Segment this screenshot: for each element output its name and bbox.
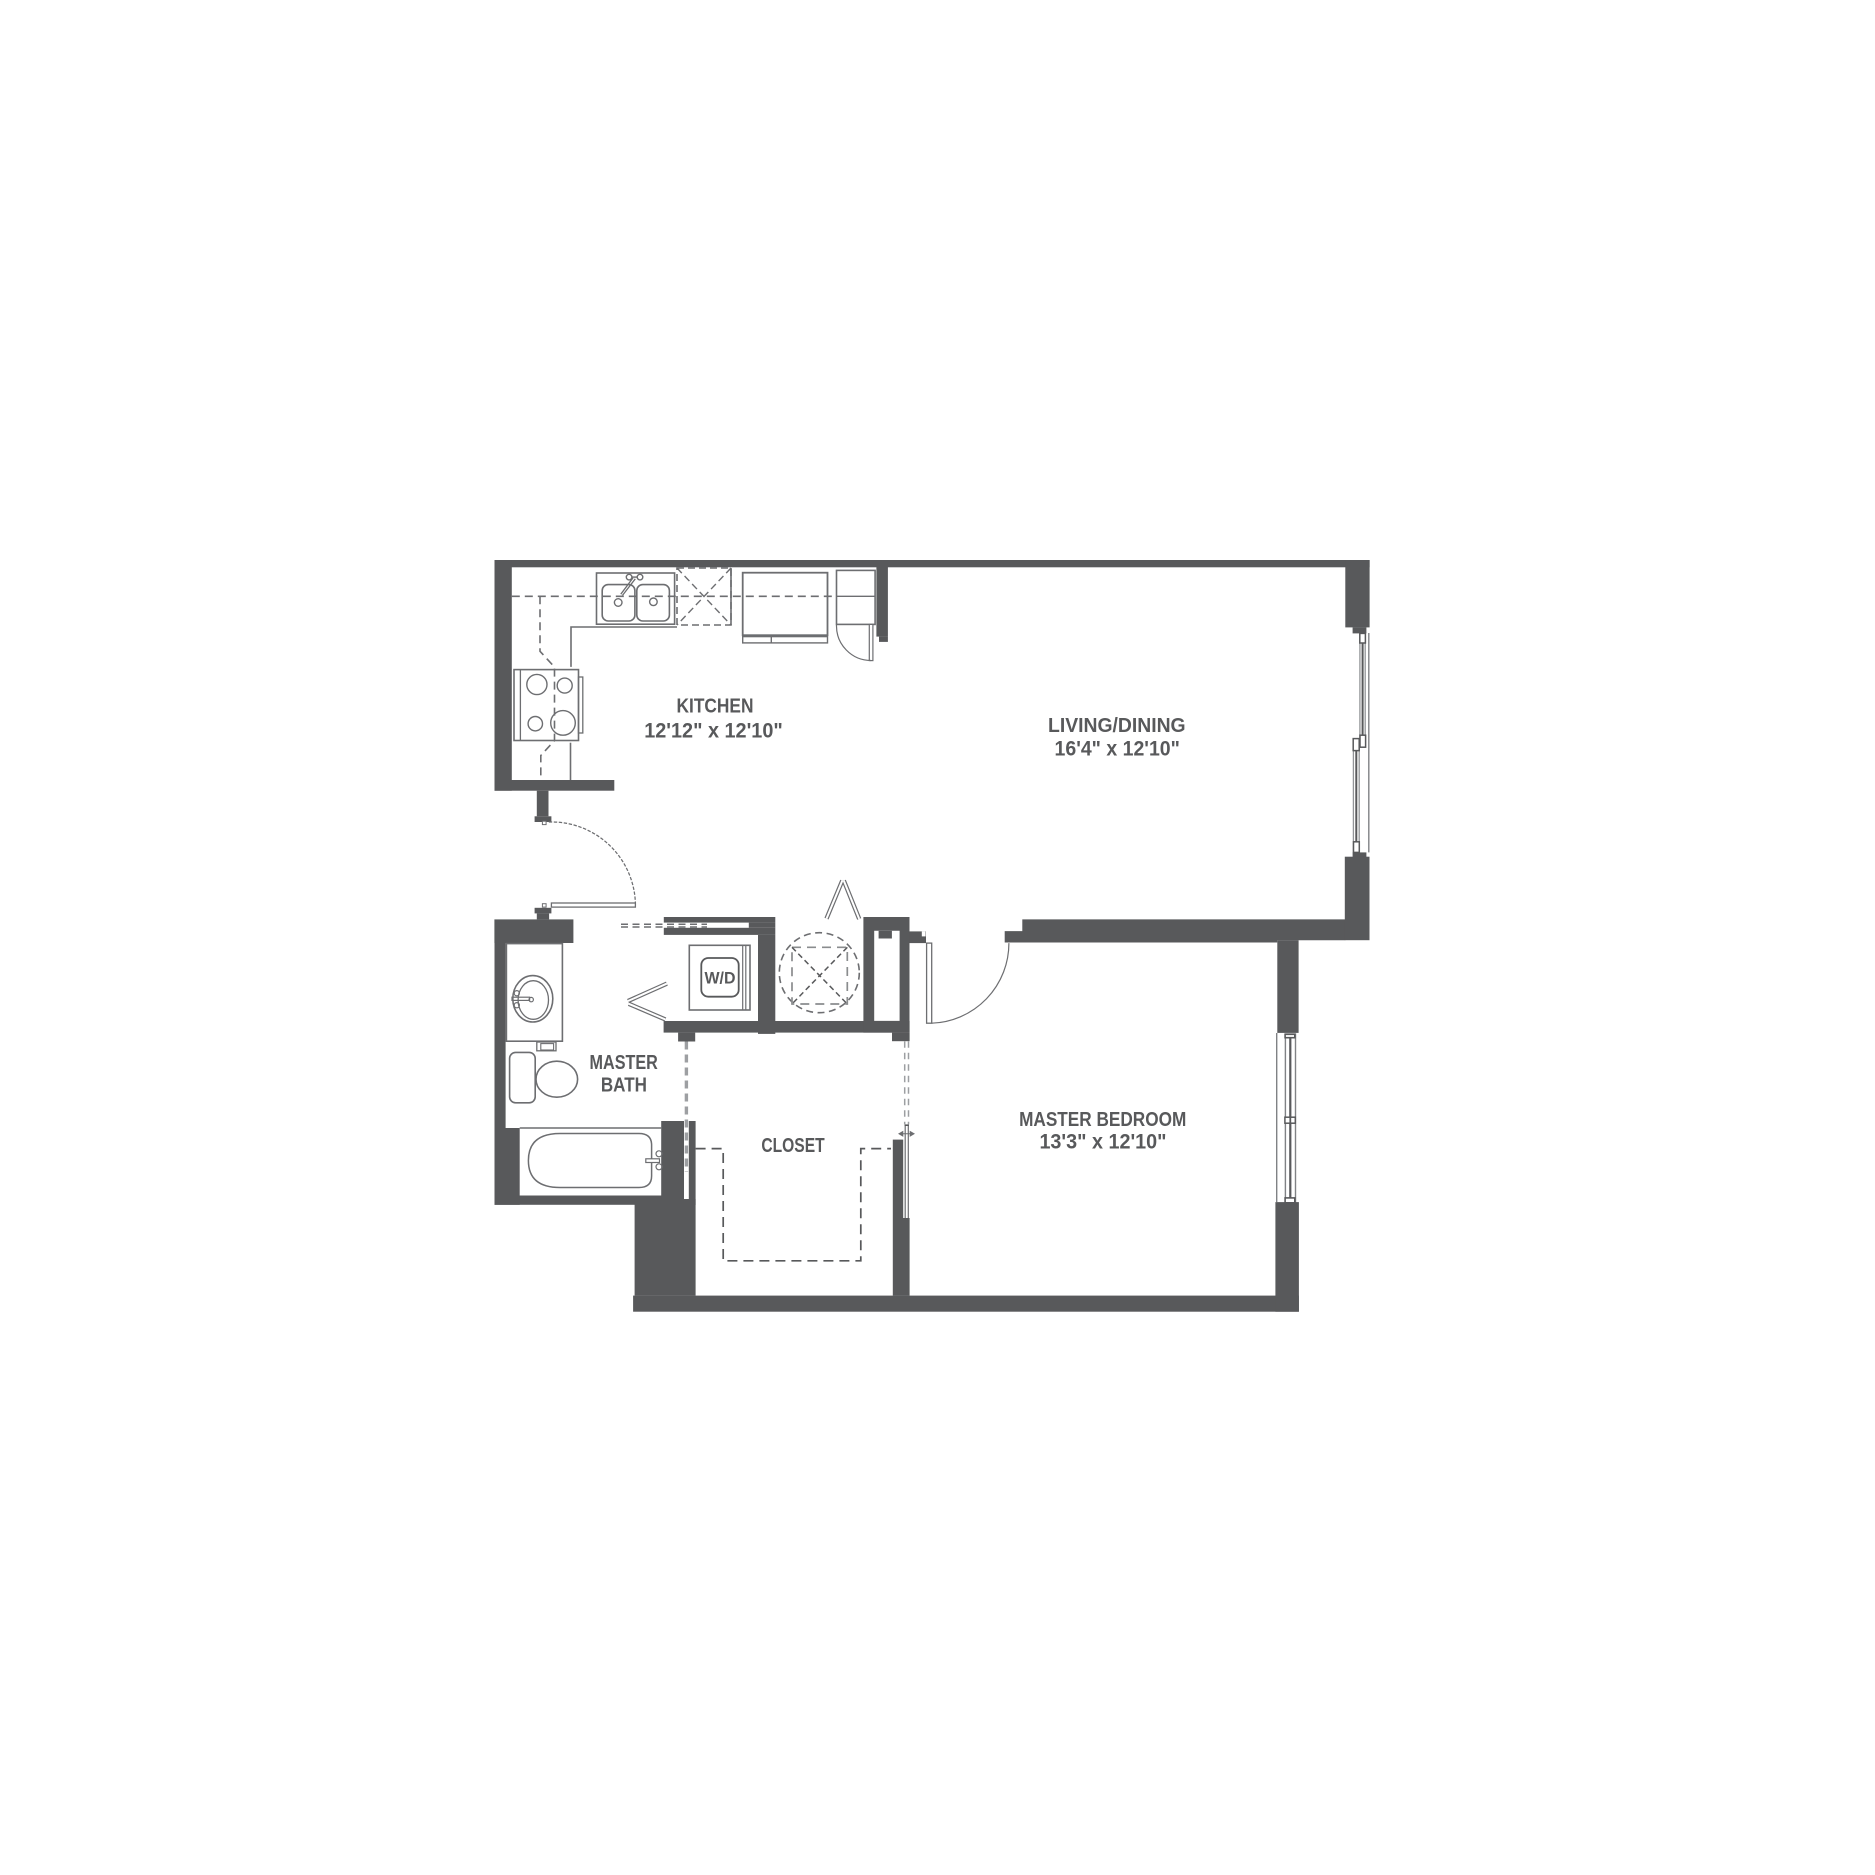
svg-text:KITCHEN: KITCHEN [677,696,754,718]
svg-text:CLOSET: CLOSET [761,1135,825,1157]
svg-text:16'4" x 12'10": 16'4" x 12'10" [1055,738,1180,761]
svg-text:13'3" x 12'10": 13'3" x 12'10" [1039,1131,1166,1154]
svg-text:12'12" x 12'10": 12'12" x 12'10" [644,719,783,742]
svg-text:MASTER: MASTER [590,1052,659,1074]
svg-text:BATH: BATH [601,1075,647,1097]
svg-text:MASTER BEDROOM: MASTER BEDROOM [1019,1109,1186,1131]
svg-text:W/D: W/D [705,969,736,988]
svg-text:LIVING/DINING: LIVING/DINING [1048,715,1186,737]
